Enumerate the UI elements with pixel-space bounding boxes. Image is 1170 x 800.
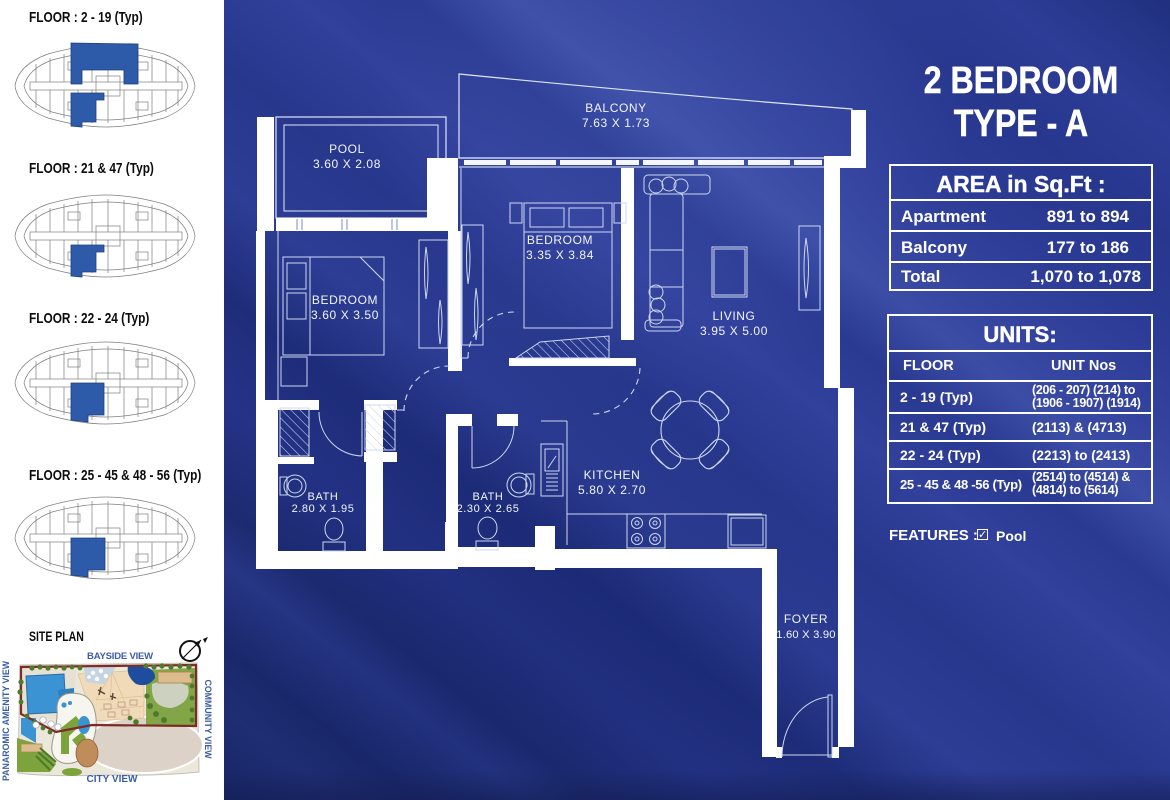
svg-text:BEDROOM: BEDROOM bbox=[312, 293, 378, 307]
svg-text:2.80 X 1.95: 2.80 X 1.95 bbox=[292, 503, 355, 515]
svg-text:3.60 X 2.08: 3.60 X 2.08 bbox=[313, 157, 381, 171]
svg-text:3.60 X 3.50: 3.60 X 3.50 bbox=[311, 308, 379, 322]
svg-text:1.60 X 3.90: 1.60 X 3.90 bbox=[776, 629, 835, 641]
svg-text:FOYER: FOYER bbox=[784, 612, 828, 626]
svg-text:LIVING: LIVING bbox=[713, 309, 756, 323]
svg-text:3.95 X 5.00: 3.95 X 5.00 bbox=[700, 324, 768, 338]
svg-text:KITCHEN: KITCHEN bbox=[584, 468, 641, 482]
svg-text:POOL: POOL bbox=[329, 142, 365, 156]
svg-text:BALCONY: BALCONY bbox=[585, 101, 647, 115]
svg-text:5.80 X 2.70: 5.80 X 2.70 bbox=[578, 483, 646, 497]
svg-text:3.35 X 3.84: 3.35 X 3.84 bbox=[526, 248, 594, 262]
svg-text:BEDROOM: BEDROOM bbox=[527, 233, 593, 247]
svg-text:BATH: BATH bbox=[308, 491, 339, 503]
svg-text:BATH: BATH bbox=[473, 491, 504, 503]
svg-text:2.30 X 2.65: 2.30 X 2.65 bbox=[457, 503, 520, 515]
svg-text:7.63 X 1.73: 7.63 X 1.73 bbox=[582, 116, 650, 130]
